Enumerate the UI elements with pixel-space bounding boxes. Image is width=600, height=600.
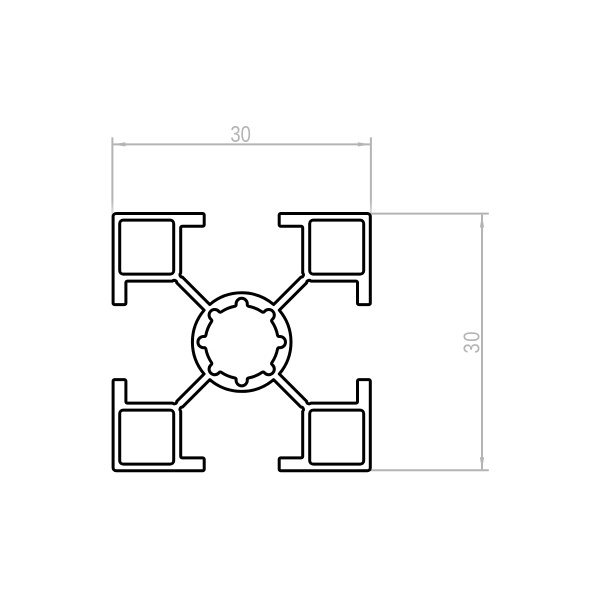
svg-text:30: 30 [230, 122, 250, 147]
svg-text:30: 30 [459, 330, 484, 354]
